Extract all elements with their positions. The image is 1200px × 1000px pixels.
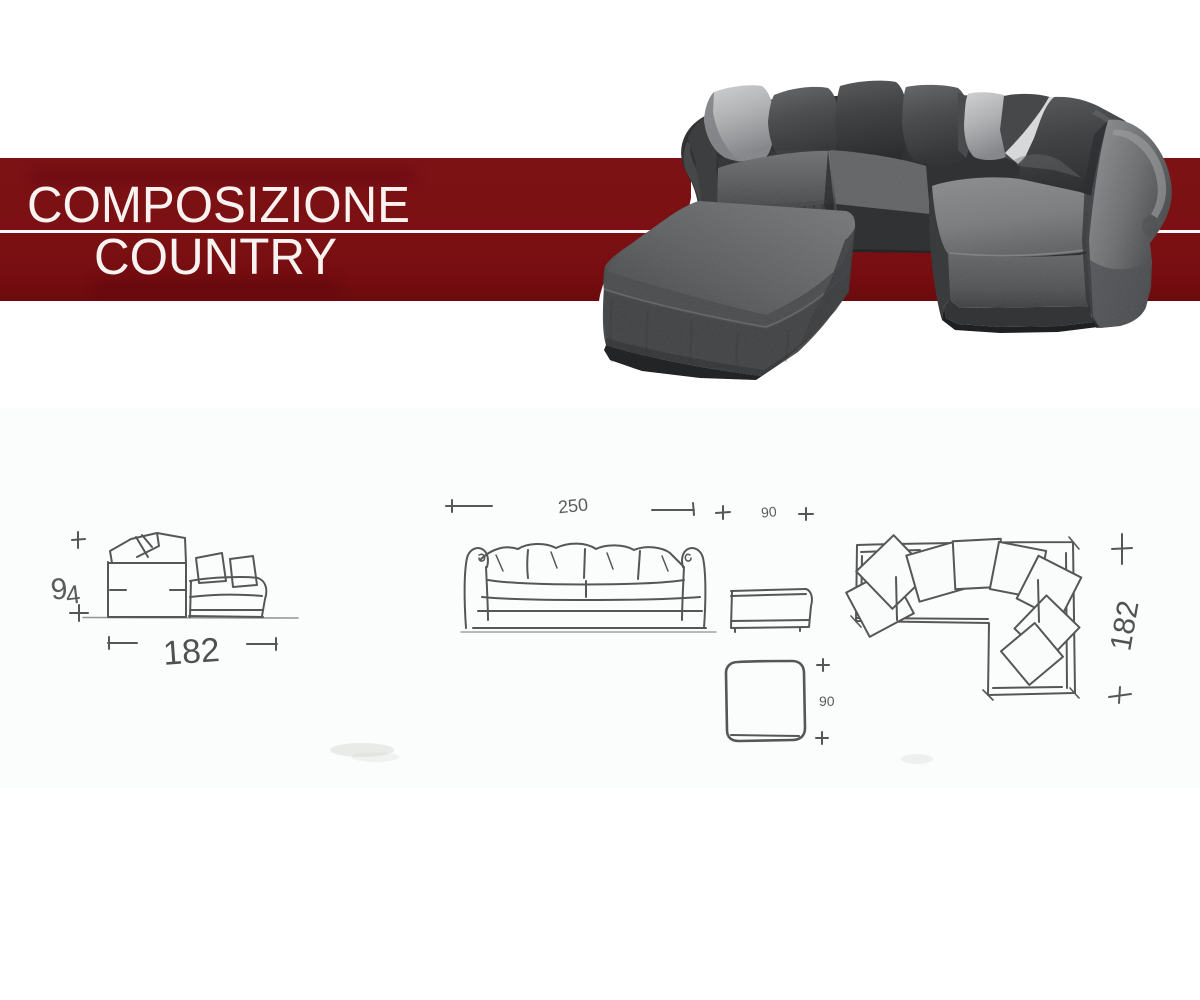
svg-text:182: 182 (162, 631, 221, 673)
svg-text:250: 250 (557, 494, 589, 517)
svg-text:90: 90 (819, 693, 835, 709)
svg-text:90: 90 (760, 503, 777, 520)
